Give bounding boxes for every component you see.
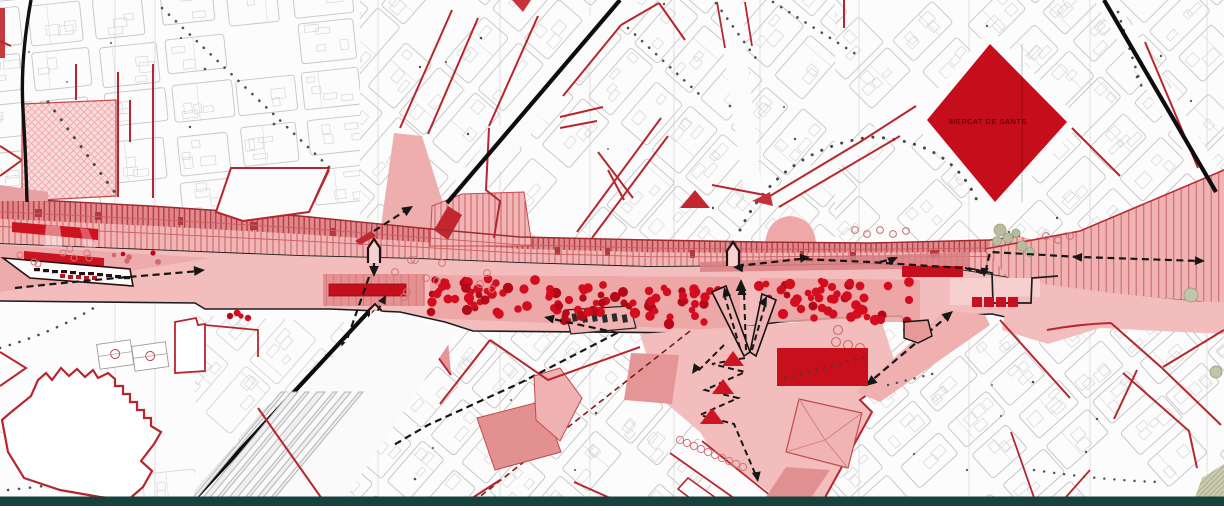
svg-text:MERCAT DE SANTS: MERCAT DE SANTS [949, 117, 1027, 126]
